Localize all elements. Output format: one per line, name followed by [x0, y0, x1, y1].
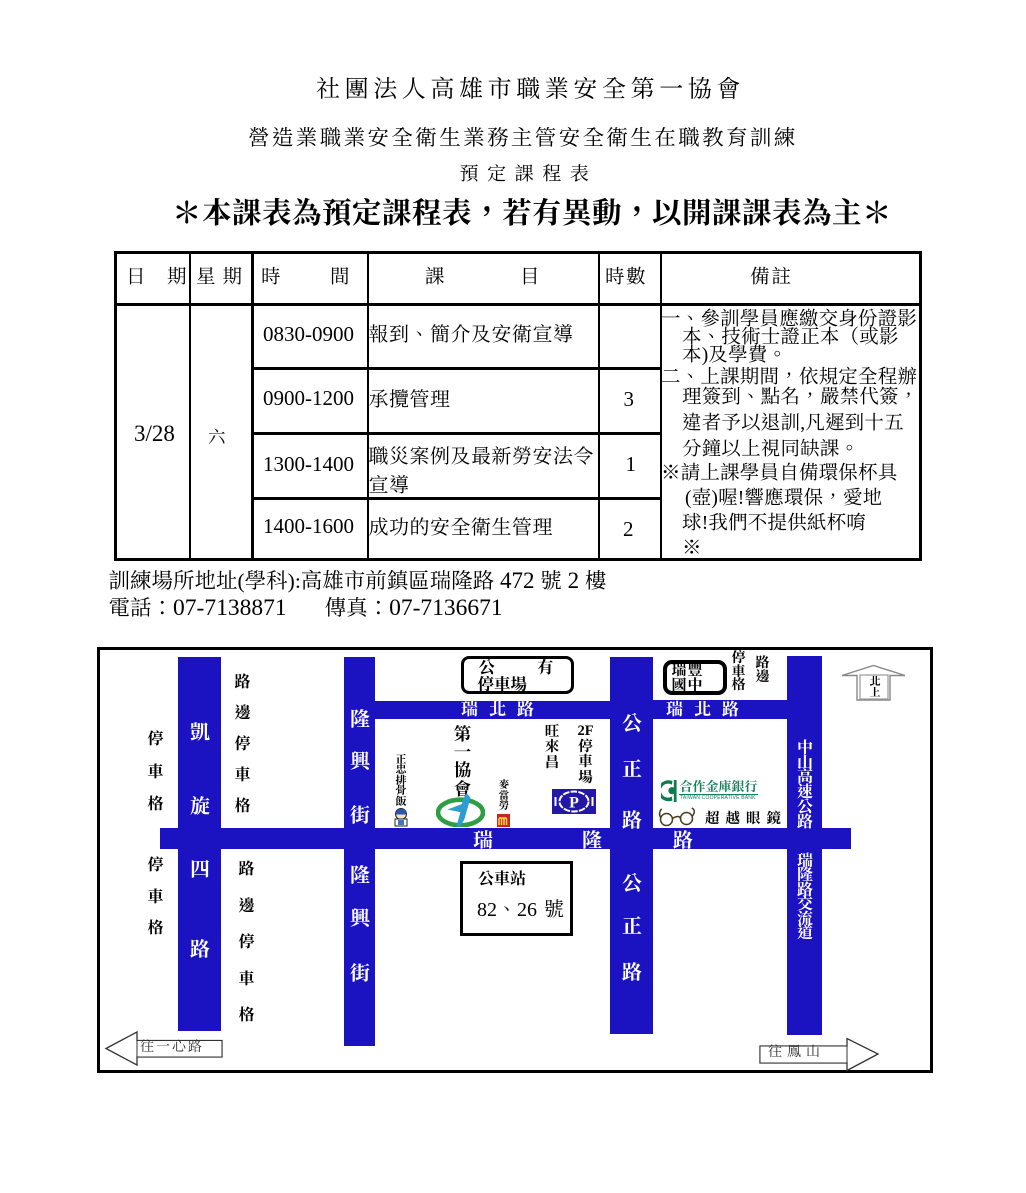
svg-text:P: P	[569, 795, 579, 812]
